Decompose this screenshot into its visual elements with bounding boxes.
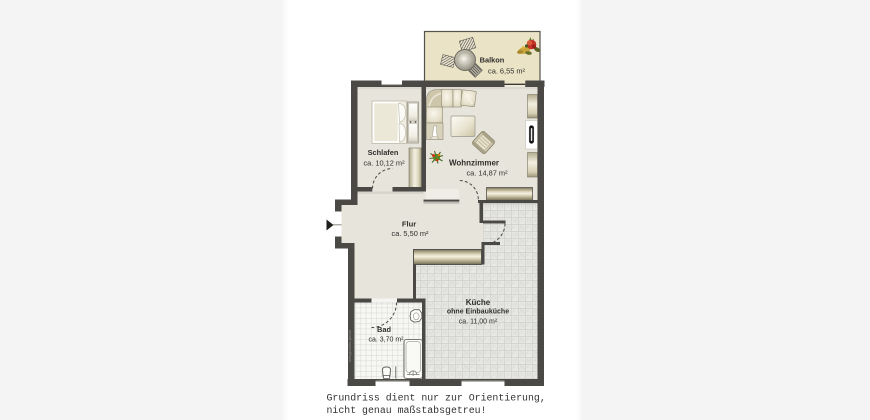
svg-text:ca. 10,12 m²: ca. 10,12 m²: [363, 159, 405, 168]
svg-text:ca. 3,70 m²: ca. 3,70 m²: [368, 337, 404, 344]
svg-text:Schlafen: Schlafen: [368, 148, 399, 157]
svg-text:nicht genau maßstabsgetreu!: nicht genau maßstabsgetreu!: [327, 405, 487, 416]
svg-text:ca. 11,00 m²: ca. 11,00 m²: [459, 319, 498, 326]
svg-text:ca. 5,50 m²: ca. 5,50 m²: [392, 229, 430, 238]
svg-text:Flur: Flur: [402, 220, 416, 229]
svg-text:ohne Einbauküche: ohne Einbauküche: [447, 309, 509, 316]
svg-text:Küche: Küche: [466, 298, 491, 307]
svg-text:Wohnzimmer: Wohnzimmer: [449, 159, 499, 168]
svg-text:Balkon: Balkon: [480, 56, 505, 65]
svg-text:ca. 6,55 m²: ca. 6,55 m²: [488, 67, 526, 76]
svg-text:www.grundriss-plan.de: www.grundriss-plan.de: [348, 330, 352, 362]
svg-text:Grundriss dient nur zur Orient: Grundriss dient nur zur Orientierung,: [327, 392, 546, 403]
svg-text:ca. 14,87 m²: ca. 14,87 m²: [466, 169, 508, 178]
